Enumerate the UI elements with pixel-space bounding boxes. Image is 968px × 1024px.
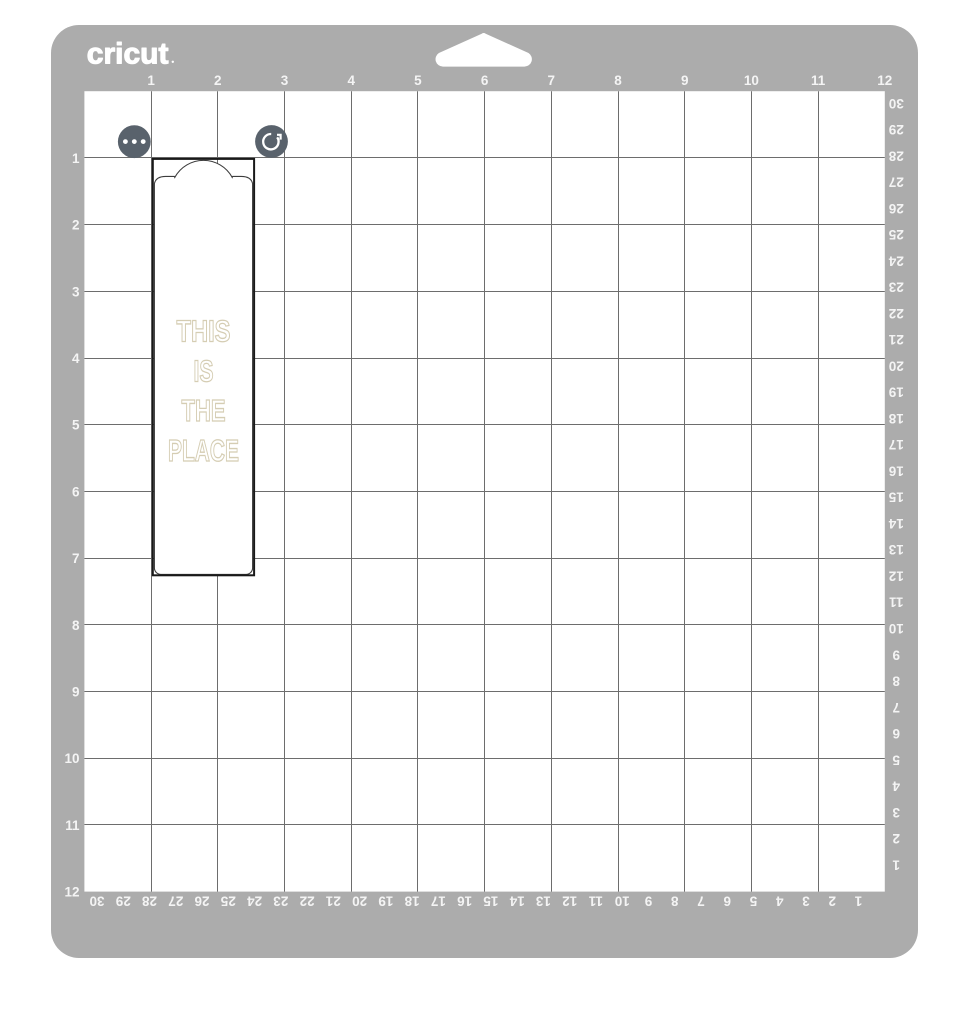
- svg-text:8: 8: [72, 618, 80, 633]
- svg-text:7: 7: [72, 551, 80, 566]
- svg-text:20: 20: [352, 894, 367, 909]
- svg-text:7: 7: [697, 894, 705, 909]
- svg-text:15: 15: [888, 490, 904, 505]
- svg-text:17: 17: [431, 894, 446, 909]
- svg-text:28: 28: [888, 148, 904, 163]
- svg-text:22: 22: [889, 306, 904, 321]
- svg-text:1: 1: [72, 151, 80, 166]
- svg-text:5: 5: [72, 418, 80, 433]
- svg-text:19: 19: [889, 385, 904, 400]
- svg-text:11: 11: [811, 73, 826, 88]
- svg-text:cricut: cricut: [87, 38, 169, 71]
- svg-text:12: 12: [877, 73, 892, 88]
- svg-text:26: 26: [194, 894, 210, 909]
- svg-text:13: 13: [535, 894, 551, 909]
- svg-text:6: 6: [723, 894, 731, 909]
- svg-text:2: 2: [829, 894, 837, 909]
- svg-text:THIS: THIS: [177, 313, 231, 348]
- svg-text:9: 9: [681, 73, 689, 88]
- svg-text:17: 17: [889, 437, 904, 452]
- svg-text:THE: THE: [182, 393, 226, 428]
- svg-text:4: 4: [72, 351, 80, 366]
- svg-text:11: 11: [588, 894, 603, 909]
- svg-text:12: 12: [64, 885, 79, 900]
- svg-text:2: 2: [893, 831, 901, 846]
- svg-text:7: 7: [548, 73, 556, 88]
- svg-text:19: 19: [378, 894, 393, 909]
- svg-text:5: 5: [749, 894, 757, 909]
- svg-text:10: 10: [64, 751, 79, 766]
- svg-text:29: 29: [116, 894, 131, 909]
- svg-text:3: 3: [72, 284, 80, 299]
- svg-text:24: 24: [247, 894, 263, 909]
- svg-text:14: 14: [509, 894, 525, 909]
- svg-text:22: 22: [300, 894, 315, 909]
- svg-text:PLACE: PLACE: [168, 433, 239, 468]
- svg-text:30: 30: [889, 96, 904, 111]
- svg-text:16: 16: [888, 463, 904, 478]
- svg-text:3: 3: [281, 73, 289, 88]
- svg-text:28: 28: [142, 894, 158, 909]
- svg-text:3: 3: [802, 894, 810, 909]
- svg-text:3: 3: [892, 805, 900, 820]
- svg-text:11: 11: [65, 818, 80, 833]
- svg-text:25: 25: [888, 227, 904, 242]
- svg-text:21: 21: [888, 332, 904, 347]
- svg-text:27: 27: [168, 894, 183, 909]
- svg-text:25: 25: [220, 894, 236, 909]
- svg-text:13: 13: [888, 542, 904, 557]
- svg-text:6: 6: [892, 726, 900, 741]
- svg-text:9: 9: [645, 894, 653, 909]
- svg-text:5: 5: [414, 73, 422, 88]
- svg-text:24: 24: [888, 253, 904, 268]
- svg-text:1: 1: [892, 857, 900, 872]
- svg-text:12: 12: [889, 569, 904, 584]
- svg-text:10: 10: [744, 73, 759, 88]
- svg-text:9: 9: [72, 685, 80, 700]
- svg-text:21: 21: [325, 894, 341, 909]
- svg-text:27: 27: [889, 175, 904, 190]
- svg-text:12: 12: [562, 894, 577, 909]
- svg-text:11: 11: [889, 595, 904, 610]
- svg-text:4: 4: [892, 779, 900, 794]
- svg-text:8: 8: [670, 894, 678, 909]
- svg-text:14: 14: [888, 516, 904, 531]
- svg-text:9: 9: [893, 647, 901, 662]
- svg-text:5: 5: [892, 752, 900, 767]
- svg-text:23: 23: [273, 894, 289, 909]
- svg-text:8: 8: [614, 73, 622, 88]
- svg-text:4: 4: [347, 73, 355, 88]
- svg-text:10: 10: [889, 621, 904, 636]
- svg-text:10: 10: [615, 894, 630, 909]
- svg-text:18: 18: [404, 894, 420, 909]
- svg-text:26: 26: [888, 201, 904, 216]
- svg-text:20: 20: [889, 358, 904, 373]
- svg-text:7: 7: [893, 700, 901, 715]
- svg-text:8: 8: [892, 674, 900, 689]
- svg-text:1: 1: [854, 894, 862, 909]
- svg-text:18: 18: [888, 411, 904, 426]
- svg-text:1: 1: [147, 73, 155, 88]
- svg-text:6: 6: [72, 484, 80, 499]
- svg-text:6: 6: [481, 73, 489, 88]
- svg-text:30: 30: [89, 894, 104, 909]
- svg-text:15: 15: [483, 894, 499, 909]
- svg-text:2: 2: [214, 73, 222, 88]
- svg-text:4: 4: [776, 894, 784, 909]
- svg-text:2: 2: [72, 218, 80, 233]
- svg-text:16: 16: [457, 894, 473, 909]
- svg-text:23: 23: [888, 280, 904, 295]
- svg-text:29: 29: [889, 122, 904, 137]
- svg-text:IS: IS: [194, 354, 214, 389]
